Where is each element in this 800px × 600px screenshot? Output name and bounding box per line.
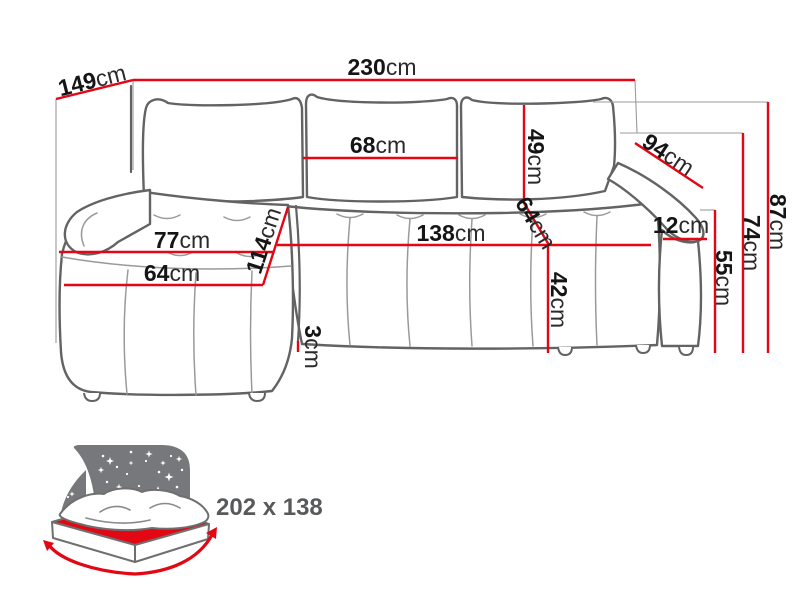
sofa-leg: [249, 393, 265, 401]
dim-label-230: 230cm: [347, 54, 416, 80]
dim-label-55: 55cm: [711, 250, 737, 306]
diagram-canvas: 149cm 230cm 68cm 49cm 64cm 94cm 12cm 87c…: [0, 0, 800, 600]
sofa-dimension-diagram: 149cm 230cm 68cm 49cm 64cm 94cm 12cm 87c…: [0, 0, 800, 600]
dim-label-138: 138cm: [416, 220, 485, 246]
dim-label-42: 42cm: [546, 272, 572, 328]
sofa-leg: [636, 345, 650, 353]
right-arm-front: [659, 230, 701, 346]
dim-label-49: 49cm: [523, 129, 549, 185]
dim-label-77: 77cm: [154, 227, 210, 253]
sofa-leg: [84, 393, 100, 401]
sleeping-function-icon: 202 x 138: [43, 445, 323, 574]
sofa-leg: [679, 347, 693, 355]
dim-label-12: 12cm: [653, 212, 709, 238]
sofa-leg: [558, 347, 572, 355]
dim-label-68: 68cm: [350, 132, 406, 158]
dim-label-94: 94cm: [638, 128, 699, 181]
dim-label-149: 149cm: [55, 59, 128, 101]
dim-label-64-chaise: 64cm: [144, 260, 200, 286]
back-pillow-left: [143, 98, 303, 201]
dim-label-74: 74cm: [739, 215, 765, 271]
sleeping-size-label: 202 x 138: [216, 494, 323, 521]
dim-label-87: 87cm: [765, 194, 791, 250]
dim-label-3: 3cm: [300, 325, 326, 368]
